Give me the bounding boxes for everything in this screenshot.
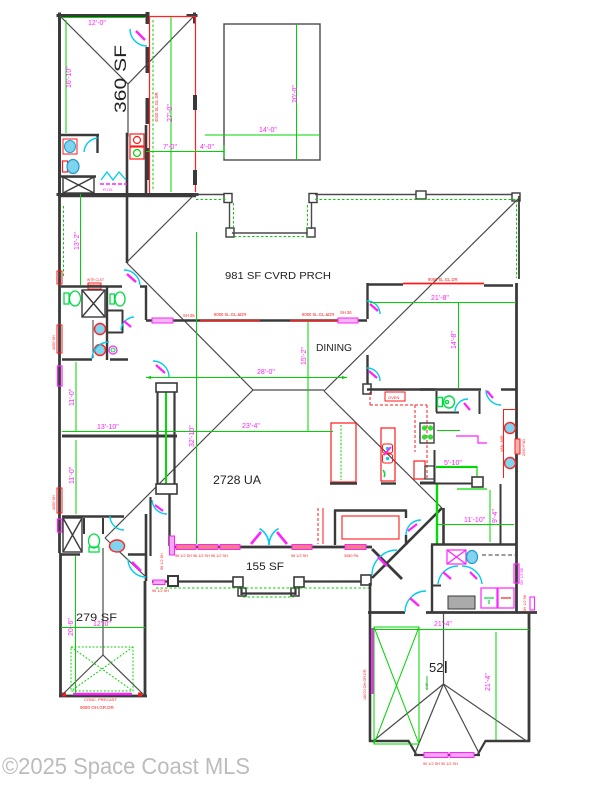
- svg-text:32'-10": 32'-10": [189, 425, 196, 447]
- svg-text:CONC. PRECAST: CONC. PRECAST: [84, 697, 117, 702]
- svg-text:96 1/2 SH: 96 1/2 SH: [160, 553, 164, 570]
- svg-text:12'-0": 12'-0": [93, 621, 111, 628]
- svg-text:11'-10": 11'-10": [464, 517, 486, 524]
- svg-text:4040 SL.GL.DR: 4040 SL.GL.DR: [154, 92, 159, 122]
- svg-text:11'-0": 11'-0": [69, 466, 76, 484]
- svg-text:13'-2": 13'-2": [74, 232, 81, 250]
- svg-text:3080 PA.: 3080 PA.: [344, 554, 359, 558]
- svg-text:VAN. MIR.: VAN. MIR.: [500, 434, 504, 452]
- svg-text:52: 52: [429, 660, 443, 675]
- svg-text:981 SF CVRD PRCH: 981 SF CVRD PRCH: [225, 270, 331, 282]
- svg-text:©2025 Space Coast MLS: ©2025 Space Coast MLS: [2, 753, 250, 779]
- svg-text:9'-4": 9'-4": [492, 509, 499, 523]
- svg-text:9090 SL.GL.DR: 9090 SL.GL.DR: [428, 277, 458, 282]
- svg-text:15'-2": 15'-2": [301, 347, 308, 365]
- svg-text:5'-10": 5'-10": [444, 460, 462, 467]
- svg-text:R.I.B.: R.I.B.: [103, 187, 113, 192]
- svg-text:SH 26: SH 26: [183, 313, 195, 318]
- svg-text:8080 SL.GL.&DR: 8080 SL.GL.&DR: [214, 312, 246, 317]
- svg-text:27'-0": 27'-0": [167, 104, 174, 122]
- svg-text:23'-4": 23'-4": [242, 423, 260, 430]
- svg-text:WTR CLST: WTR CLST: [87, 278, 105, 282]
- svg-text:21'-4": 21'-4": [485, 673, 492, 691]
- svg-text:2040 FXD: 2040 FXD: [522, 439, 526, 456]
- svg-text:96 1/2 SH 96 1/2 SH 96 1/2 SH: 96 1/2 SH 96 1/2 SH 96 1/2 SH: [175, 554, 228, 558]
- svg-text:SH 1/2 96: SH 1/2 96: [523, 595, 527, 612]
- svg-text:20'-6": 20'-6": [68, 618, 75, 636]
- svg-text:13'-10": 13'-10": [97, 424, 119, 431]
- svg-text:14'-8": 14'-8": [451, 331, 458, 349]
- svg-text:11'-0": 11'-0": [69, 388, 76, 406]
- svg-text:9080 OH.GR.DR: 9080 OH.GR.DR: [80, 705, 115, 710]
- svg-text:DINING: DINING: [316, 343, 352, 354]
- svg-text:96 1/2 SH: 96 1/2 SH: [291, 554, 308, 558]
- svg-text:90 1/2 SH 90 1/2 SH: 90 1/2 SH 90 1/2 SH: [423, 762, 458, 766]
- svg-text:14'-0": 14'-0": [259, 127, 277, 134]
- svg-text:21'-8": 21'-8": [431, 295, 449, 302]
- svg-text:155 SF: 155 SF: [246, 561, 284, 573]
- svg-text:OVEN: OVEN: [388, 395, 399, 400]
- svg-text:28'-0": 28'-0": [257, 369, 275, 376]
- svg-text:16'-10": 16'-10": [66, 66, 73, 88]
- svg-text:21'-4": 21'-4": [434, 621, 452, 628]
- svg-text:96 1/2 SH: 96 1/2 SH: [152, 589, 169, 593]
- svg-text:4'-0": 4'-0": [200, 144, 214, 151]
- svg-text:2728 UA: 2728 UA: [213, 473, 261, 487]
- svg-text:SH 1/2 86: SH 1/2 86: [520, 568, 524, 585]
- svg-text:8080 SL.GL.&DR: 8080 SL.GL.&DR: [302, 312, 334, 317]
- svg-text:4050 SH: 4050 SH: [52, 335, 56, 350]
- svg-text:7'-0": 7'-0": [163, 144, 177, 151]
- svg-text:360 SF: 360 SF: [111, 45, 130, 113]
- svg-text:SH 26: SH 26: [340, 310, 352, 315]
- svg-text:16070 OH.GR.DR: 16070 OH.GR.DR: [363, 669, 367, 700]
- svg-text:12'-0": 12'-0": [88, 20, 106, 27]
- svg-text:20'-0": 20'-0": [292, 85, 299, 103]
- svg-text:4050 SH: 4050 SH: [52, 495, 56, 510]
